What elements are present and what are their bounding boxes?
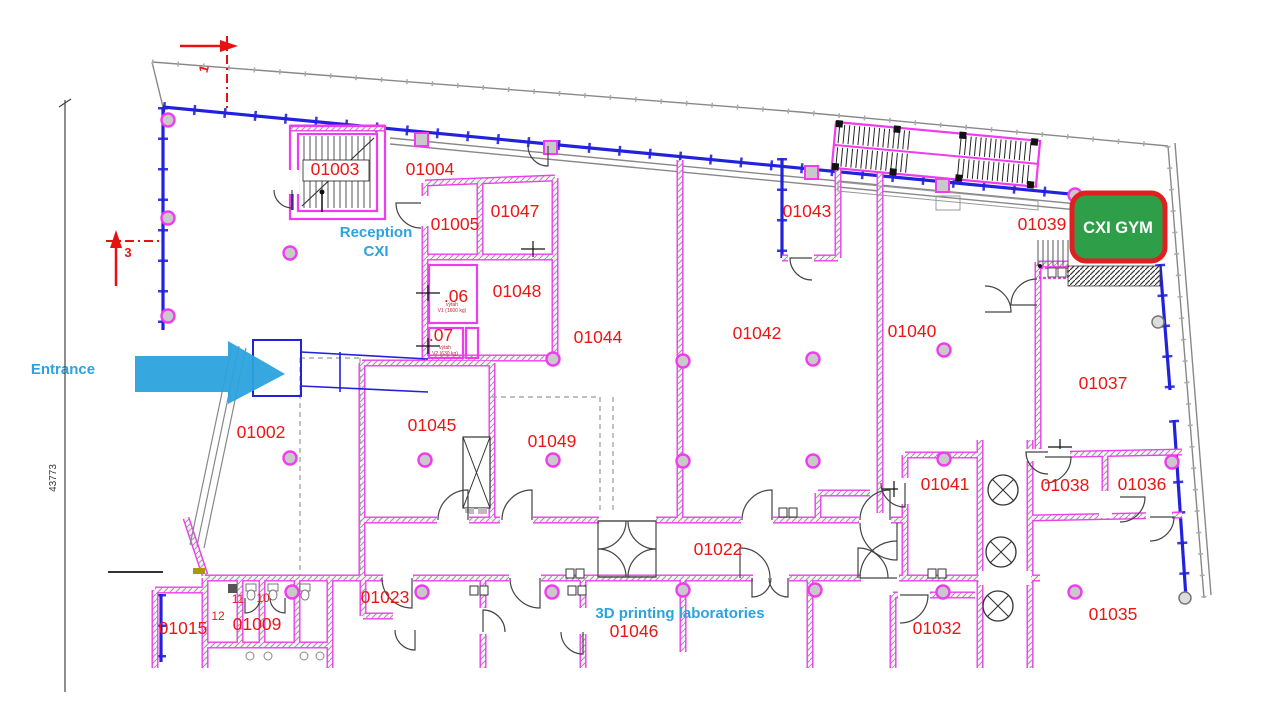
reception-label-line1: Reception: [340, 224, 413, 241]
stair-post: [1038, 264, 1042, 268]
room-label-01002: 01002: [237, 422, 286, 442]
edge-handle: [1179, 592, 1191, 604]
door-gap: [1040, 449, 1070, 461]
column-marker: [677, 355, 690, 368]
fixture: [928, 569, 936, 578]
room-label-01022: 01022: [694, 539, 743, 559]
fixture: [789, 508, 797, 517]
fixture: [1058, 268, 1066, 277]
outer-right-a: [1168, 146, 1204, 598]
wall-hatch: [186, 518, 205, 575]
toilet-bowl: [301, 590, 309, 600]
room-label-01041: 01041: [921, 474, 970, 494]
room-label-01042: 01042: [733, 323, 782, 343]
elevator-note-1: V1 (1600 kg): [438, 308, 467, 314]
mullion-square: [544, 141, 557, 154]
door-swing: [1011, 279, 1037, 305]
glazing-right-b: [1174, 420, 1186, 598]
escalator-post: [836, 120, 844, 128]
column-marker: [1069, 586, 1082, 599]
room-label-01009: 01009: [233, 614, 282, 634]
column-marker: [546, 586, 559, 599]
sink: [246, 652, 254, 660]
room-labels-layer: 0100301004010050104701048.06.07010440104…: [159, 159, 1167, 641]
counter-hatch: [1068, 266, 1160, 286]
door-cross: [416, 285, 440, 301]
mullion-square: [415, 133, 428, 146]
room-label-01038: 01038: [1041, 475, 1090, 495]
door-gap: [599, 513, 656, 527]
entrance-arrow: [135, 341, 285, 404]
room-label-01043: 01043: [783, 201, 832, 221]
elevator-small-shaft: [466, 328, 478, 358]
door-gap: [1026, 449, 1042, 461]
column-marker: [286, 586, 299, 599]
column-marker: [419, 454, 432, 467]
section-marker-1: 1: [180, 36, 238, 108]
escalator-post: [1031, 138, 1039, 146]
svg-text:3: 3: [124, 245, 131, 260]
escalator-post: [832, 163, 840, 171]
column-marker: [809, 584, 822, 597]
escalator-post: [893, 125, 901, 133]
door-gap: [979, 571, 1031, 585]
fixture: [566, 569, 574, 578]
outer-left: [152, 62, 163, 107]
entrance-label: Entrance: [31, 361, 95, 378]
fixture: [480, 586, 488, 595]
elevator-note-3: V2 (630 kg): [432, 351, 458, 357]
dimension-value: 43773: [48, 464, 59, 492]
room-label-01039: 01039: [1018, 214, 1067, 234]
column-marker: [162, 212, 175, 225]
column-marker: [937, 586, 950, 599]
column-marker: [938, 344, 951, 357]
escalator-post: [1027, 181, 1035, 189]
door-gap: [577, 608, 590, 634]
door-gap: [1146, 509, 1172, 522]
room-label-01040: 01040: [888, 321, 937, 341]
room-label-01037: 01037: [1079, 373, 1128, 393]
column-marker: [807, 353, 820, 366]
escalator-post: [889, 168, 897, 176]
fixture: [576, 569, 584, 578]
column-marker: [284, 247, 297, 260]
room-label-01044: 01044: [574, 327, 623, 347]
gym-label: CXI GYM: [1083, 219, 1153, 237]
small-label-11: 11: [232, 592, 245, 606]
room-label-01045: 01045: [408, 415, 457, 435]
door-swing: [598, 549, 626, 577]
column-marker: [677, 455, 690, 468]
escalator-post: [959, 131, 967, 139]
stair-01039: [1038, 240, 1068, 268]
toilet-bowl: [247, 590, 255, 600]
column-marker: [677, 584, 690, 597]
fixture: [470, 586, 478, 595]
column-marker: [162, 114, 175, 127]
door-gap: [393, 610, 416, 623]
room-label-01049: 01049: [528, 431, 577, 451]
mullion-square: [805, 166, 818, 179]
room-label-01003: 01003: [311, 159, 360, 179]
sink: [316, 652, 324, 660]
section-marker-3: 3: [106, 230, 162, 286]
sink: [300, 652, 308, 660]
room-label-01048: 01048: [493, 281, 542, 301]
floor-plan: Entrance Reception CXI 3D printing labor…: [0, 0, 1280, 720]
door-swing: [985, 286, 1011, 312]
column-marker: [1166, 456, 1179, 469]
door-gap: [741, 513, 773, 527]
room-label-01036: 01036: [1118, 474, 1167, 494]
printing-lab-label: 3D printing laboratories: [595, 605, 764, 622]
small-label-10: 10: [256, 591, 270, 605]
column-marker: [547, 454, 560, 467]
column-marker: [162, 310, 175, 323]
room-label-01032: 01032: [913, 618, 962, 638]
fixture: [938, 569, 946, 578]
room-label-01035: 01035: [1089, 604, 1138, 624]
column-marker: [416, 586, 429, 599]
double-door-frame: [598, 521, 656, 577]
room-label-01023: 01023: [361, 587, 410, 607]
room-label-01047: 01047: [491, 201, 540, 221]
door-gap: [1099, 491, 1112, 518]
door-gap: [509, 571, 541, 585]
edge-handle: [1152, 316, 1164, 328]
reception-label-line2: CXI: [363, 243, 388, 260]
fixture: [578, 586, 586, 595]
room-label-07: .07: [429, 325, 453, 345]
fixture: [568, 586, 576, 595]
sink: [264, 652, 272, 660]
entrance-vestibule: [253, 340, 428, 396]
fixture: [1048, 268, 1056, 277]
dimension-line: 43773: [48, 99, 71, 692]
door-gap: [437, 513, 469, 527]
shaft-foot: [478, 508, 487, 514]
door-gap: [383, 571, 413, 585]
door-gap: [500, 513, 533, 527]
door-gap: [859, 513, 891, 527]
column-marker: [284, 452, 297, 465]
column-marker: [547, 353, 560, 366]
room-label-01015: 01015: [159, 618, 208, 638]
escalator-post: [955, 174, 963, 182]
room-label-01046: 01046: [610, 621, 659, 641]
fixture: [779, 508, 787, 517]
small-label-12: 12: [211, 609, 225, 623]
room-label-01004: 01004: [406, 159, 455, 179]
door-swing: [628, 549, 656, 577]
door-swing: [395, 630, 415, 650]
column-marker: [938, 453, 951, 466]
column-marker: [807, 455, 820, 468]
threshold-mark: [193, 568, 205, 574]
room-label-01005: 01005: [431, 214, 480, 234]
mullion-square: [936, 179, 949, 192]
